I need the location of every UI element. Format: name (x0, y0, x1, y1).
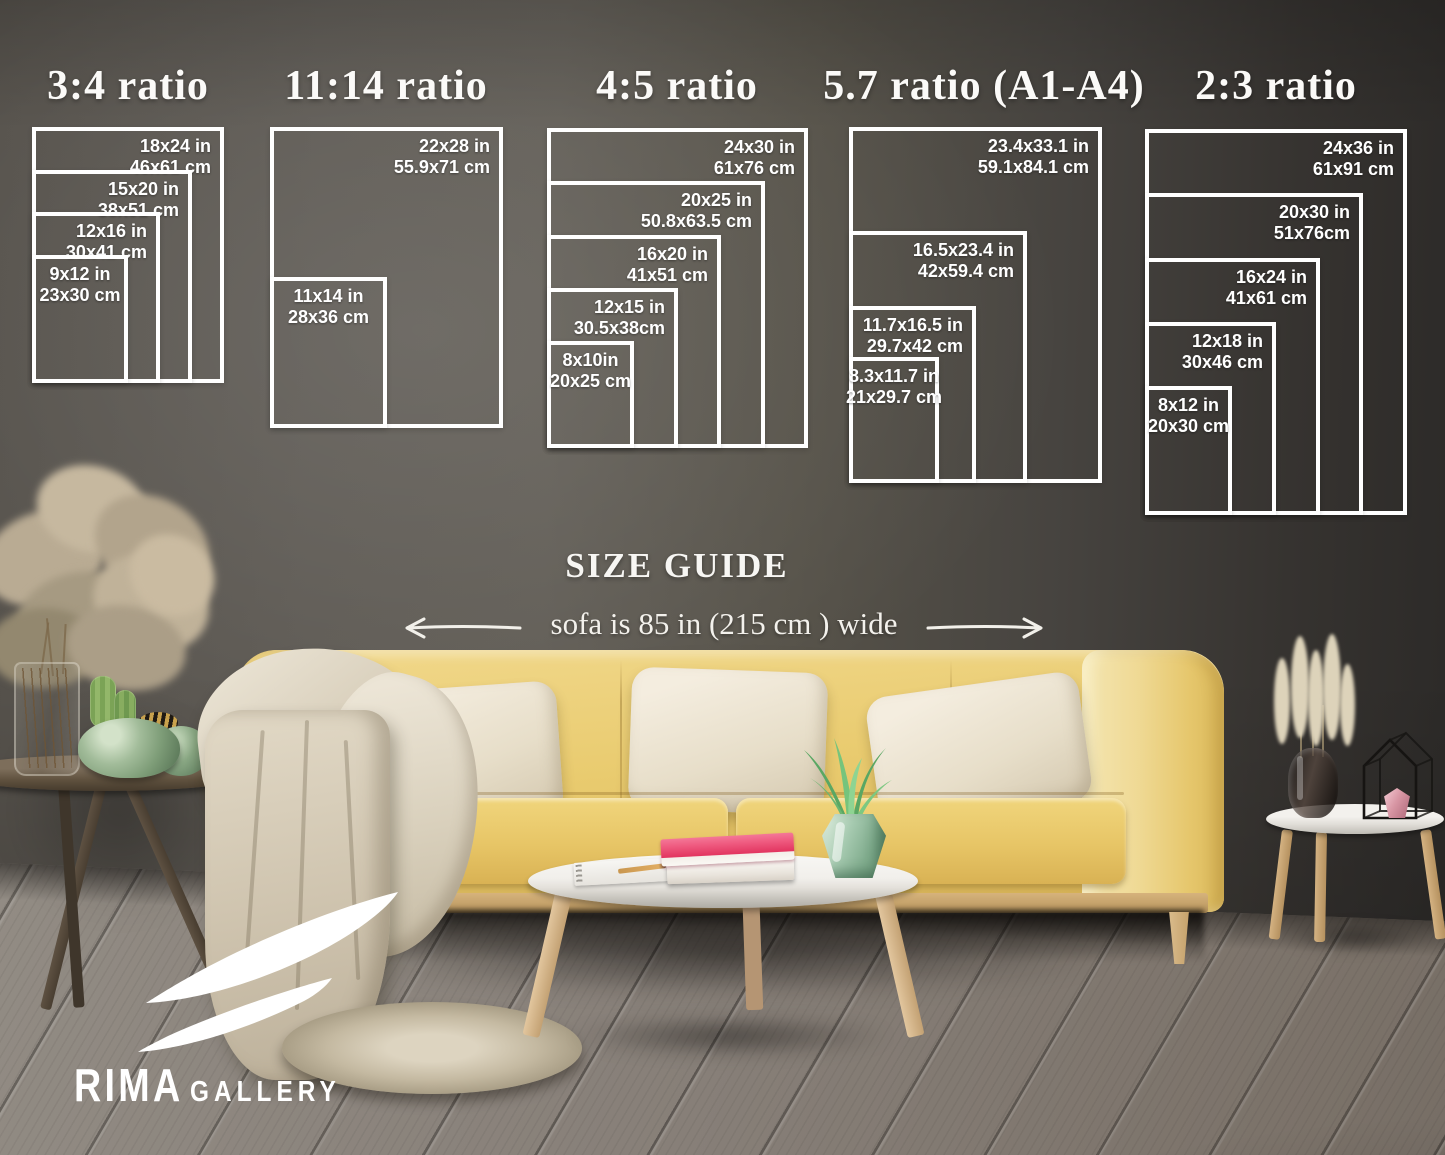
size-rect-8.3x11.7in: 8.3x11.7 in21x29.7 cm (849, 357, 939, 483)
arrow-right-icon (926, 615, 1046, 641)
ratio-frame-5-7: 23.4x33.1 in59.1x84.1 cm16.5x23.4 in42x5… (849, 127, 1102, 483)
size-label: 8x10in20x25 cm (550, 350, 631, 392)
size-label: 16.5x23.4 in42x59.4 cm (913, 240, 1014, 282)
panel-title-5-7: 5.7 ratio (A1-A4) (823, 62, 1144, 110)
panel-title-4-5: 4:5 ratio (596, 62, 758, 110)
size-label: 12x15 in30.5x38cm (574, 297, 665, 339)
size-rect-8x10in: 8x10in20x25 cm (547, 341, 634, 448)
size-label: 22x28 in55.9x71 cm (394, 136, 490, 178)
size-label: 12x18 in30x46 cm (1182, 331, 1263, 373)
ratio-frame-4-5: 24x30 in61x76 cm20x25 in50.8x63.5 cm16x2… (547, 128, 808, 448)
panel-title-2-3: 2:3 ratio (1195, 62, 1357, 110)
size-label: 23.4x33.1 in59.1x84.1 cm (978, 136, 1089, 178)
size-guide-poster: 3:4 ratio 11:14 ratio 4:5 ratio 5.7 rati… (0, 0, 1445, 1155)
size-label: 24x36 in61x91 cm (1313, 138, 1394, 180)
brand-name-suffix: GALLERY (190, 1076, 341, 1109)
brand-name-main: RIMA (74, 1058, 184, 1112)
sofa-width-note: sofa is 85 in (215 cm ) wide (551, 606, 898, 642)
size-guide-heading: SIZE GUIDE (565, 546, 788, 586)
panel-title-11-14: 11:14 ratio (284, 62, 487, 110)
size-label: 8.3x11.7 in21x29.7 cm (846, 366, 942, 408)
brand-name: RIMA GALLERY (74, 1058, 369, 1112)
size-label: 20x25 in50.8x63.5 cm (641, 190, 752, 232)
size-label: 24x30 in61x76 cm (714, 137, 795, 179)
size-rect-9x12in: 9x12 in23x30 cm (32, 255, 128, 383)
size-label: 11x14 in28x36 cm (288, 286, 369, 328)
size-label: 16x20 in41x51 cm (627, 244, 708, 286)
ratio-frame-2-3: 24x36 in61x91 cm20x30 in51x76cm16x24 in4… (1145, 129, 1407, 515)
arrow-left-icon (402, 615, 522, 641)
size-label: 8x12 in20x30 cm (1148, 395, 1229, 437)
size-label: 9x12 in23x30 cm (39, 264, 120, 306)
size-label: 11.7x16.5 in29.7x42 cm (863, 315, 963, 357)
ratio-frame-11-14: 22x28 in55.9x71 cm11x14 in28x36 cm (270, 127, 503, 428)
size-label: 16x24 in41x61 cm (1226, 267, 1307, 309)
size-rect-8x12in: 8x12 in20x30 cm (1145, 386, 1232, 515)
panel-title-3-4: 3:4 ratio (47, 62, 209, 110)
size-rect-11x14in: 11x14 in28x36 cm (270, 277, 387, 428)
size-label: 20x30 in51x76cm (1274, 202, 1350, 244)
ratio-frame-3-4: 18x24 in46x61 cm15x20 in38x51 cm12x16 in… (32, 127, 224, 383)
logo-swoosh-icon (96, 886, 406, 1058)
